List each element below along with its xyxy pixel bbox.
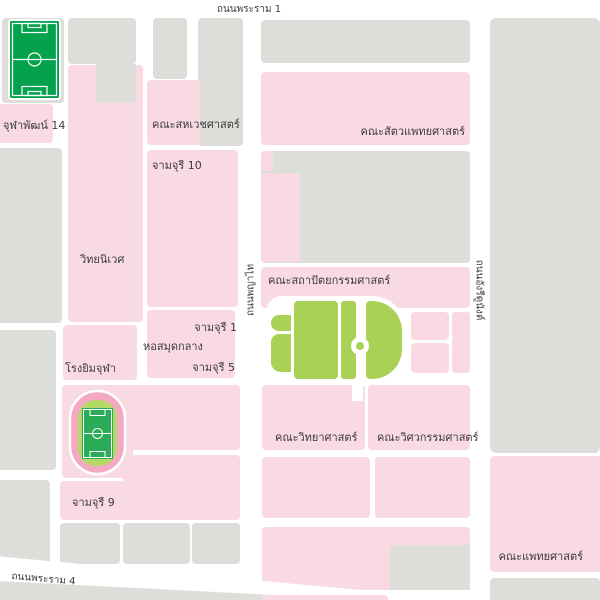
label-phayathai-road: ถนนพญาไท [244,264,259,316]
label-rama1-road: ถนนพระราม 1 [217,3,281,16]
label-withayaniwet: วิทยนิเวศ [80,253,124,266]
stadium-track-icon [62,385,133,478]
label-architecture: คณะสถาปัตยกรรมศาสตร์ [268,274,390,287]
label-science: คณะวิทยาศาสตร์ [275,431,357,444]
flag-roundabout-center [356,342,364,350]
label-henri-dunant-road: ถนนอังรีดูนังต์ [472,260,487,321]
label-central-library: หอสมุดกลาง [143,340,203,353]
lawn-parterre [271,315,291,331]
label-medicine: คณะแพทยศาสตร์ [499,550,583,563]
label-engineering: คณะวิศวกรรมศาสตร์ [377,431,478,444]
label-chamchuri10: จามจุรี 10 [152,159,202,172]
campus-map: ถนนพระราม 1 จุฬาพัฒน์ 14 คณะสหเวชศาสตร์ … [0,0,600,600]
label-chamchuri9: จามจุรี 9 [72,496,115,509]
label-chula-gym: โรงยิมจุฬา [65,362,116,375]
block-generic [262,595,388,600]
label-allied-health: คณะสหเวชศาสตร์ [152,118,240,131]
lawn-parterre [294,301,338,379]
label-chulaphat14: จุฬาพัฒน์ 14 [3,119,65,132]
lawn-parterre [271,334,291,372]
label-chamchuri5: จามจุรี 5 [192,361,235,374]
soccer-field-icon [8,19,61,100]
label-veterinary: คณะสัตวแพทยศาสตร์ [361,125,465,138]
label-chamchuri1: จามจุรี 1 [194,321,237,334]
